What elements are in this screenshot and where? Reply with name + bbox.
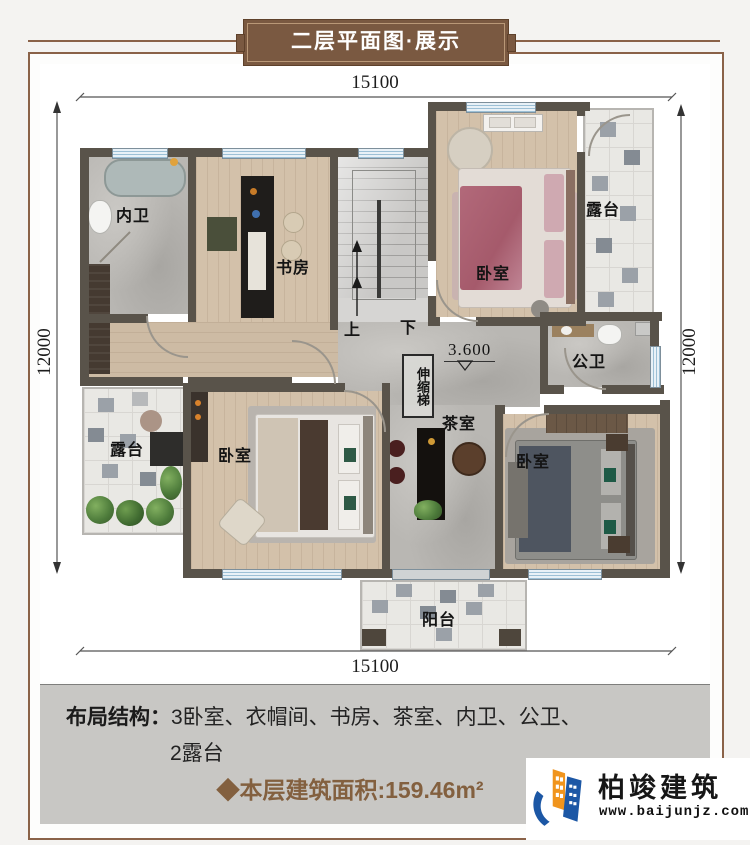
floor-plan: 内卫 书房 卧室 露台 公卫 茶室 卧室 卧室 露台 阳台 上 下 3.600 …	[0, 0, 750, 845]
plant	[160, 466, 182, 500]
pillow-accent-green	[604, 468, 616, 482]
label-public-bath: 公卫	[572, 348, 606, 372]
headboard	[363, 416, 373, 534]
terrace-bench	[150, 432, 183, 466]
label-tea-room: 茶室	[442, 410, 476, 434]
dresser-drawer	[514, 117, 536, 128]
pillow-accent-green	[604, 520, 616, 534]
nightstand	[608, 536, 630, 553]
headboard	[566, 170, 575, 304]
tile-square	[396, 584, 412, 597]
dresser-drawer	[489, 117, 511, 128]
wall	[80, 377, 183, 386]
logo-website: www.baijunjz.com	[599, 804, 749, 820]
page-title: 二层平面图·展示	[244, 20, 508, 64]
tile-square	[478, 584, 494, 597]
bed-runner	[258, 418, 298, 532]
company-logo: 柏竣建筑 www.baijunjz.com	[526, 758, 750, 840]
tile-square	[596, 238, 612, 253]
label-bedroom-top: 卧室	[476, 260, 510, 284]
wall	[188, 157, 196, 322]
label-bedroom-left: 卧室	[218, 442, 252, 466]
wall	[540, 312, 662, 321]
nightstand	[606, 434, 628, 451]
tile-square	[140, 472, 156, 486]
tile-square	[592, 176, 608, 191]
wall	[540, 385, 564, 394]
title-banner: 二层平面图·展示	[243, 19, 509, 66]
bed-pillow	[544, 174, 564, 232]
logo-building-icon	[530, 764, 594, 830]
banner-tab-right	[507, 34, 516, 52]
plant	[146, 498, 174, 526]
tile-square	[98, 398, 114, 412]
plant	[116, 500, 144, 526]
label-balcony: 阳台	[422, 606, 456, 630]
sink	[561, 326, 572, 335]
bed-pillow	[544, 240, 564, 298]
label-bedroom-right: 卧室	[516, 448, 550, 472]
pillow-accent-green	[344, 448, 356, 462]
tile-square	[622, 268, 638, 283]
candle	[195, 400, 201, 406]
wall	[183, 383, 345, 392]
label-stairs-down: 下	[400, 314, 417, 338]
tile-square	[132, 392, 148, 406]
wall	[544, 405, 670, 414]
window	[222, 569, 342, 580]
tea-plant	[414, 500, 442, 520]
tile-square	[598, 292, 614, 307]
stair-center-rail	[377, 200, 381, 298]
balcony-door	[392, 569, 490, 580]
tea-stool	[388, 440, 405, 457]
wall	[428, 317, 440, 326]
wall	[428, 111, 436, 261]
window	[466, 102, 536, 113]
tile-square	[102, 464, 118, 478]
tea-set	[428, 438, 435, 445]
candle	[195, 414, 201, 420]
wall	[80, 148, 89, 386]
desk-item	[252, 210, 260, 218]
label-elevation: 3.600	[444, 340, 495, 362]
lounge-chair	[447, 127, 493, 173]
desk-item	[250, 188, 257, 195]
stair-railing	[352, 170, 416, 300]
toilet	[597, 324, 622, 345]
window	[222, 148, 306, 159]
toilet	[88, 200, 112, 234]
label-inner-bath: 内卫	[116, 202, 150, 226]
bath-faucet	[170, 158, 178, 166]
desk-mat	[248, 232, 266, 290]
tea-chair	[452, 442, 486, 476]
tile-square	[372, 600, 388, 613]
banner-tab-left	[236, 34, 245, 52]
tea-stool	[388, 467, 405, 484]
wardrobe	[546, 414, 628, 433]
wall	[540, 312, 548, 394]
pillow-accent-green	[344, 496, 356, 510]
balcony-planter	[499, 629, 521, 646]
tile-square	[620, 206, 636, 221]
wall	[577, 152, 585, 320]
balcony-planter	[362, 629, 386, 646]
window	[528, 569, 602, 580]
shower-head	[635, 322, 651, 336]
wall	[86, 314, 148, 323]
tile-square	[440, 590, 456, 603]
label-terrace-right: 露台	[586, 196, 620, 220]
label-study: 书房	[276, 254, 310, 278]
window	[358, 148, 404, 159]
tile-square	[88, 428, 104, 442]
wall	[183, 383, 191, 578]
window	[112, 148, 168, 159]
wall	[382, 383, 390, 573]
label-retractable-ladder: 伸缩梯	[402, 354, 434, 418]
label-stairs-up: 上	[344, 316, 361, 340]
wall	[660, 400, 670, 578]
tile-square	[466, 602, 482, 615]
study-rug	[207, 217, 237, 251]
bed-bench	[508, 462, 528, 538]
wall	[577, 102, 585, 116]
study-chair	[283, 212, 304, 233]
wall	[330, 157, 338, 330]
bed-blanket-dark	[300, 420, 328, 530]
wall	[495, 405, 503, 578]
window	[650, 346, 661, 388]
terrace-pouf	[140, 410, 162, 432]
label-terrace-left: 露台	[110, 436, 144, 460]
plant	[86, 496, 114, 524]
logo-company-name: 柏竣建筑	[598, 766, 722, 805]
